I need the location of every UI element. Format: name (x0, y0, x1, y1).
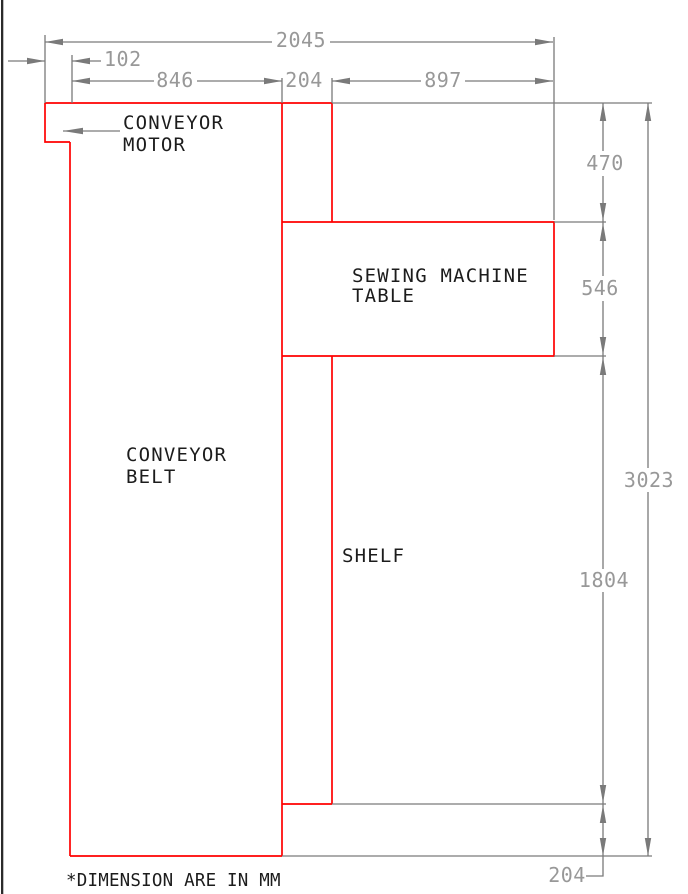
arrowhead (332, 78, 350, 84)
arrowhead (600, 337, 606, 355)
conveyor-belt-label-line2: BELT (126, 466, 177, 488)
conveyor-belt-label-line1: CONVEYOR (126, 444, 227, 466)
dim-shelf-height: 1804 (579, 568, 629, 592)
dim-sewing-table-height: 546 (581, 276, 619, 300)
conveyor-motor-label-line2: MOTOR (123, 134, 186, 156)
machine-outline (45, 103, 554, 856)
arrowhead (600, 203, 606, 221)
arrowhead (72, 58, 90, 64)
arrowhead (264, 78, 282, 84)
arrowhead (535, 78, 553, 84)
arrowhead (600, 103, 606, 121)
dim-conveyor-belt-width: 846 (156, 68, 194, 92)
dim-overall-width: 2045 (276, 28, 326, 52)
sewing-machine-table-label-line1: SEWING MACHINE (352, 265, 529, 287)
component-labels: CONVEYOR MOTOR CONVEYOR BELT SEWING MACH… (66, 112, 529, 891)
sewing-machine-table-label-line2: TABLE (352, 285, 415, 307)
technical-drawing-canvas: 2045 102 846 204 897 470 546 1804 3023 2… (0, 0, 688, 894)
dim-bottom-section-height: 204 (548, 863, 586, 887)
dim-shelf-width: 204 (285, 68, 323, 92)
arrowhead (600, 838, 606, 856)
dim-top-section-height: 470 (586, 151, 624, 175)
dim-motor-overhang-width: 102 (104, 47, 142, 71)
window-left-border (1, 0, 3, 894)
arrowhead (600, 223, 606, 241)
bottom-height-leader-line (586, 856, 603, 876)
dim-sewing-table-width: 897 (424, 68, 462, 92)
dim-overall-height: 3023 (624, 468, 674, 492)
leader-arrowhead (63, 128, 83, 134)
sewing-table-outline (282, 222, 554, 356)
arrowhead (535, 39, 553, 45)
arrowhead (27, 58, 45, 64)
shelf-label: SHELF (342, 545, 405, 567)
arrowhead (645, 838, 651, 856)
conveyor-motor-label-line1: CONVEYOR (123, 112, 224, 134)
arrowhead (645, 103, 651, 121)
conveyor-motor-outline (45, 103, 70, 142)
arrowheads (27, 39, 651, 856)
arrowhead (600, 785, 606, 803)
arrowhead (45, 39, 63, 45)
arrowhead (600, 357, 606, 375)
arrowhead (72, 78, 90, 84)
cad-drawing: 2045 102 846 204 897 470 546 1804 3023 2… (0, 0, 688, 894)
dimension-lines (8, 42, 648, 876)
arrowhead (600, 805, 606, 823)
dimension-note: *DIMENSION ARE IN MM (66, 871, 281, 891)
